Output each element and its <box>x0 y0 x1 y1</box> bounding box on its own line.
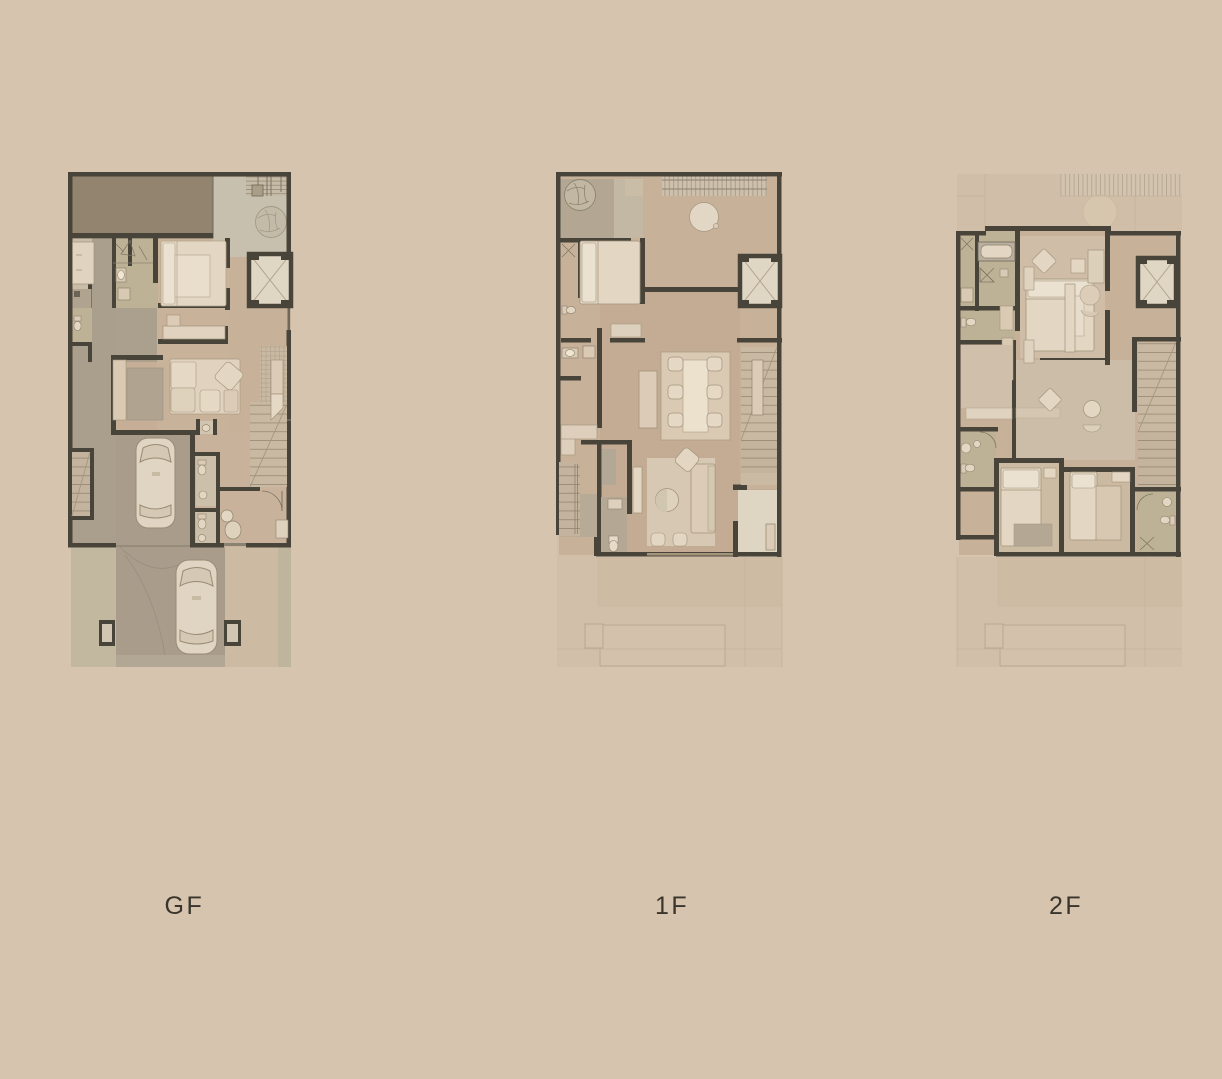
svg-text:1F: 1F <box>655 892 689 920</box>
svg-text:GF: GF <box>165 892 205 920</box>
svg-text:2F: 2F <box>1049 892 1083 920</box>
